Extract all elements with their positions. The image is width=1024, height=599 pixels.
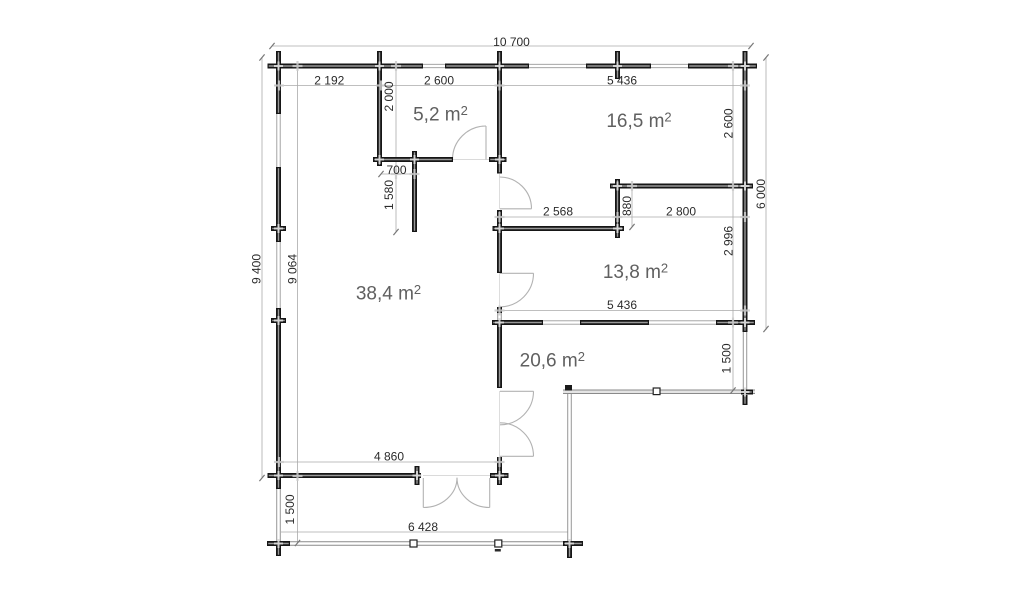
svg-text:38,4 m2: 38,4 m2 bbox=[356, 282, 421, 305]
svg-text:2 000: 2 000 bbox=[382, 81, 396, 111]
svg-text:1 500: 1 500 bbox=[720, 343, 734, 373]
svg-text:9 064: 9 064 bbox=[285, 254, 299, 284]
svg-text:2 568: 2 568 bbox=[543, 205, 573, 219]
svg-text:5 436: 5 436 bbox=[607, 298, 637, 312]
svg-text:1 580: 1 580 bbox=[382, 180, 396, 210]
svg-text:700: 700 bbox=[386, 163, 406, 177]
svg-text:1 500: 1 500 bbox=[283, 494, 297, 524]
svg-text:4 860: 4 860 bbox=[374, 450, 404, 464]
svg-text:5,2 m2: 5,2 m2 bbox=[413, 103, 468, 126]
svg-text:2 600: 2 600 bbox=[424, 74, 454, 88]
svg-text:2 192: 2 192 bbox=[314, 74, 344, 88]
svg-text:13,8 m2: 13,8 m2 bbox=[603, 260, 668, 283]
svg-text:2 600: 2 600 bbox=[722, 108, 736, 138]
svg-text:20,6 m2: 20,6 m2 bbox=[520, 348, 585, 371]
svg-text:6 000: 6 000 bbox=[754, 179, 768, 209]
svg-text:16,5 m2: 16,5 m2 bbox=[606, 109, 671, 132]
svg-text:2 800: 2 800 bbox=[666, 205, 696, 219]
svg-text:880: 880 bbox=[620, 196, 634, 216]
svg-text:5 436: 5 436 bbox=[607, 74, 637, 88]
svg-text:2 996: 2 996 bbox=[722, 226, 736, 256]
svg-text:9 400: 9 400 bbox=[249, 254, 263, 284]
svg-text:6 428: 6 428 bbox=[408, 520, 438, 534]
svg-text:10 700: 10 700 bbox=[493, 35, 530, 49]
